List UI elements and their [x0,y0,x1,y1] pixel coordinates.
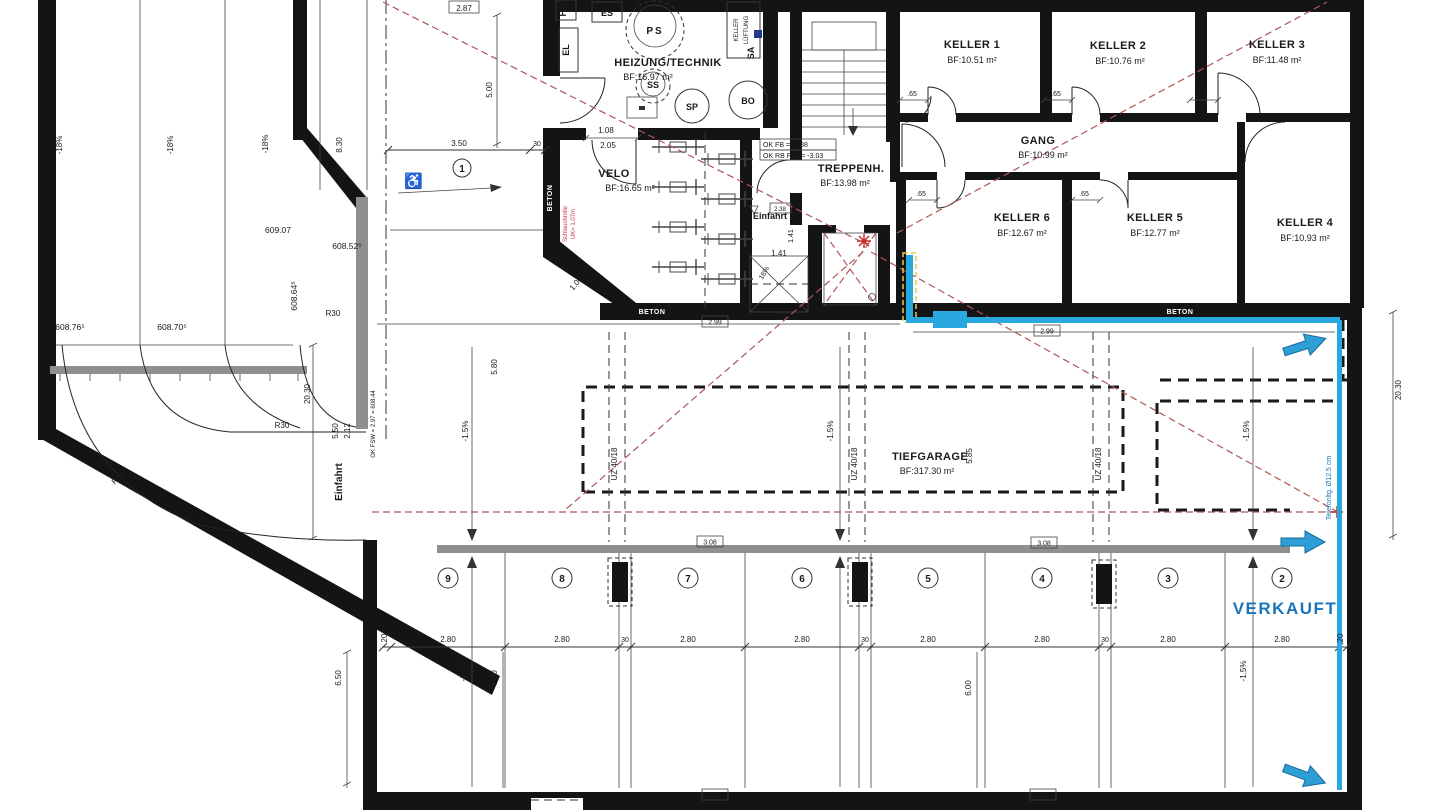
equipment-el-label: EL [561,44,571,56]
dim-287-box: 2.87 [456,4,472,13]
equipment-ps-label: PS [646,26,663,37]
room-area-keller1: BF:10.51 m² [947,55,997,65]
bike-rack-icons [652,132,753,308]
einfahrt-label-west: Einfahrt [334,462,345,500]
equipment-sp-label: SP [686,102,698,112]
dim-108: 1.08 [598,126,614,135]
direction-arrow-icon [1281,328,1330,363]
slope-15-d: -1.5% [459,661,468,682]
ramp-slope-label-3: -18% [261,135,270,154]
schlauchrolle-note: Schlauchrolle [563,205,569,242]
retaining-walls [50,197,1290,553]
room-area-keller3: BF:11.48 m² [1253,55,1302,65]
dim-500: 5.00 [485,82,494,98]
dim-299-box-b: 2.99 [1040,329,1054,336]
dim-20-left: 20 [380,633,389,642]
duct-marker-icon [754,30,762,38]
dim-550: 5.50 [331,423,340,439]
dim-308-box-b: 3.08 [1037,541,1051,548]
dim-141-horiz: 1.41 [771,249,787,258]
elevator-shaft [824,233,876,305]
beton-label-south2: BETON [1167,309,1194,316]
parking-number-5: 5 [925,574,931,585]
dim-2030-right: 20.30 [1394,379,1403,400]
grid-lines [377,324,1335,332]
parking-spot-1-zone [384,13,549,230]
room-name-velo: VELO [598,168,630,180]
grid-dimension-boxes [697,316,1060,800]
level-609-07: 609.07 [265,225,291,235]
ok-fb-box: OK FB = -2.88 [763,142,808,149]
floorplan-canvas: HEIZUNG/TECHNIK BF:16.97 m² VELO BF:16.6… [0,0,1440,810]
room-area-treppenhaus: BF:13.98 m² [820,178,870,188]
slope-15-a: -1.5% [461,421,470,442]
room-name-keller5: KELLER 5 [1127,212,1183,224]
dim-2030-left: 20.30 [303,383,312,404]
level-608-70: 608.70⁵ [157,322,187,332]
dim-212: 2.12 [343,423,352,439]
uz-beam-label-2: UZ 40/18 [850,447,859,480]
door-dim-k1: .65 [907,91,917,98]
room-name-keller2: KELLER 2 [1090,40,1146,52]
dim-280-s6: 2.80 [794,635,810,644]
ramp-slope-label-1: -18% [55,136,64,155]
parking-number-7: 7 [685,574,691,585]
dim-280-s4: 2.80 [1034,635,1050,644]
dim-280-s7: 2.80 [680,635,696,644]
equipment-es-label: ES [601,8,613,18]
dim-299-box-d: 2.99 [1036,793,1050,800]
parking-number-1: 1 [459,164,465,175]
parking-number-2: 2 [1279,574,1285,585]
slope-15-b: -1.5% [826,421,835,442]
parking-number-4: 4 [1039,574,1045,585]
dim-280-s5: 2.80 [920,635,936,644]
slope-15-c: -1.5% [1242,421,1251,442]
dim-585: 5.85 [965,448,974,464]
schlauchrolle-uk-note: UK= 1.07m [571,209,577,239]
dim-280-s8: 2.80 [554,635,570,644]
einfahrt-ramp-slope: 16% [758,265,771,281]
dim-580: 5.80 [490,359,499,375]
parking-number-3: 3 [1165,574,1171,585]
ok-fpl-box: OK RB FPL = -3.03 [763,153,823,160]
room-name-tiefgarage: TIEFGARAGE [892,451,968,463]
room-name-treppenhaus: TREPPENH. [818,163,885,175]
right-dimension-line [1389,310,1397,540]
parking-number-6: 6 [799,574,805,585]
beton-label-south1: BETON [639,309,666,316]
room-name-keller3: KELLER 3 [1249,39,1305,51]
ok-fsw-note: OK FSW = 2.97 = 608.44 [371,390,377,458]
direction-arrow-icons [1280,328,1329,793]
room-name-keller1: KELLER 1 [944,39,1000,51]
dim-280-s2: 2.80 [1274,635,1290,644]
room-area-tiefgarage: BF:317.30 m² [900,466,955,476]
parking-number-9: 9 [445,574,451,585]
slope-15-e: -1.5% [1239,661,1248,682]
room-area-velo: BF:16.65 m² [605,183,655,193]
door-dim-k2: .65 [1051,91,1061,98]
staircase [802,22,886,136]
beton-label-west: BETON [547,185,554,212]
keller-lueftung-label-2: LÜFTUNG [743,16,750,45]
dim-238-box: 2.38 [774,207,786,213]
dim-30-c1: 30 [621,637,629,644]
walls-layer [38,0,1364,810]
dim-280-s3: 2.80 [1160,635,1176,644]
room-name-gang: GANG [1021,135,1056,147]
ramp-slope-label-2: -18% [166,136,175,155]
equipment-ha-label: HA [558,3,568,16]
radius-label-r30-a: R30 [326,309,341,318]
room-area-keller2: BF:10.76 m² [1095,56,1145,66]
dim-30-spot1: 30 [533,141,541,148]
room-name-keller4: KELLER 4 [1277,217,1334,229]
ceiling-opening-dashed [583,320,1356,510]
door-dim-k3: .65 [1197,91,1207,98]
uz-beam-lines [609,332,1109,542]
room-name-keller6: KELLER 6 [994,212,1050,224]
equipment-sa-label: SA [746,46,756,59]
dim-650: 6.50 [334,670,343,686]
direction-arrow-icon [1280,758,1329,794]
dim-20-right: 20 [1336,633,1345,642]
room-area-keller5: BF:12.77 m² [1130,228,1180,238]
floorplan-drawing: HEIZUNG/TECHNIK BF:16.97 m² VELO BF:16.6… [0,0,1440,810]
parking-number-8: 8 [559,574,565,585]
uz-beam-label-3: UZ 40/18 [1094,447,1103,480]
dim-280-s9: 2.80 [440,635,456,644]
dim-600-b: 6.00 [964,680,973,696]
water-pipe [903,253,1342,790]
room-area-keller6: BF:12.67 m² [997,228,1047,238]
wheelchair-icon: ♿ [404,172,423,190]
keller-lueftung-label-1: KELLER [734,18,740,42]
dim-299-box-c: 2.99 [708,793,722,800]
room-area-keller4: BF:10.93 m² [1280,233,1330,243]
room-name-heizung: HEIZUNG/TECHNIK [614,57,721,69]
equipment-ss-label: SS [647,80,659,90]
dim-30-c3: 30 [1101,637,1109,644]
dim-141-vert: 1.41 [788,229,795,243]
dim-30-c2: 30 [861,637,869,644]
level-608-76: 608.76⁵ [55,322,85,332]
dim-205: 2.05 [600,141,616,150]
dim-350: 3.50 [451,139,467,148]
radius-label-r30-b: R30 [275,421,290,430]
level-608-64: 608.64⁵ [289,281,299,311]
dim-600-a: 6.00 [490,670,499,686]
uz-beam-label-1: UZ 40/18 [610,447,619,480]
verkauft-label: VERKAUFT [1233,599,1338,618]
door-dim-k6: .65 [916,191,926,198]
door-dim-k5: .65 [1079,191,1089,198]
dim-308-box-a: 3.08 [703,540,717,547]
level-608-52: 608.52⁵ [332,241,362,251]
telefon-pipe-label: Telefonltg. Ø12.5 cm [1326,456,1333,520]
equipment-bo-label: BO [741,96,755,106]
room-area-gang: BF:10.99 m² [1018,150,1068,160]
ramp-width-dim: 8.30 [335,137,344,153]
dim-299-box-a: 2.99 [708,320,722,327]
